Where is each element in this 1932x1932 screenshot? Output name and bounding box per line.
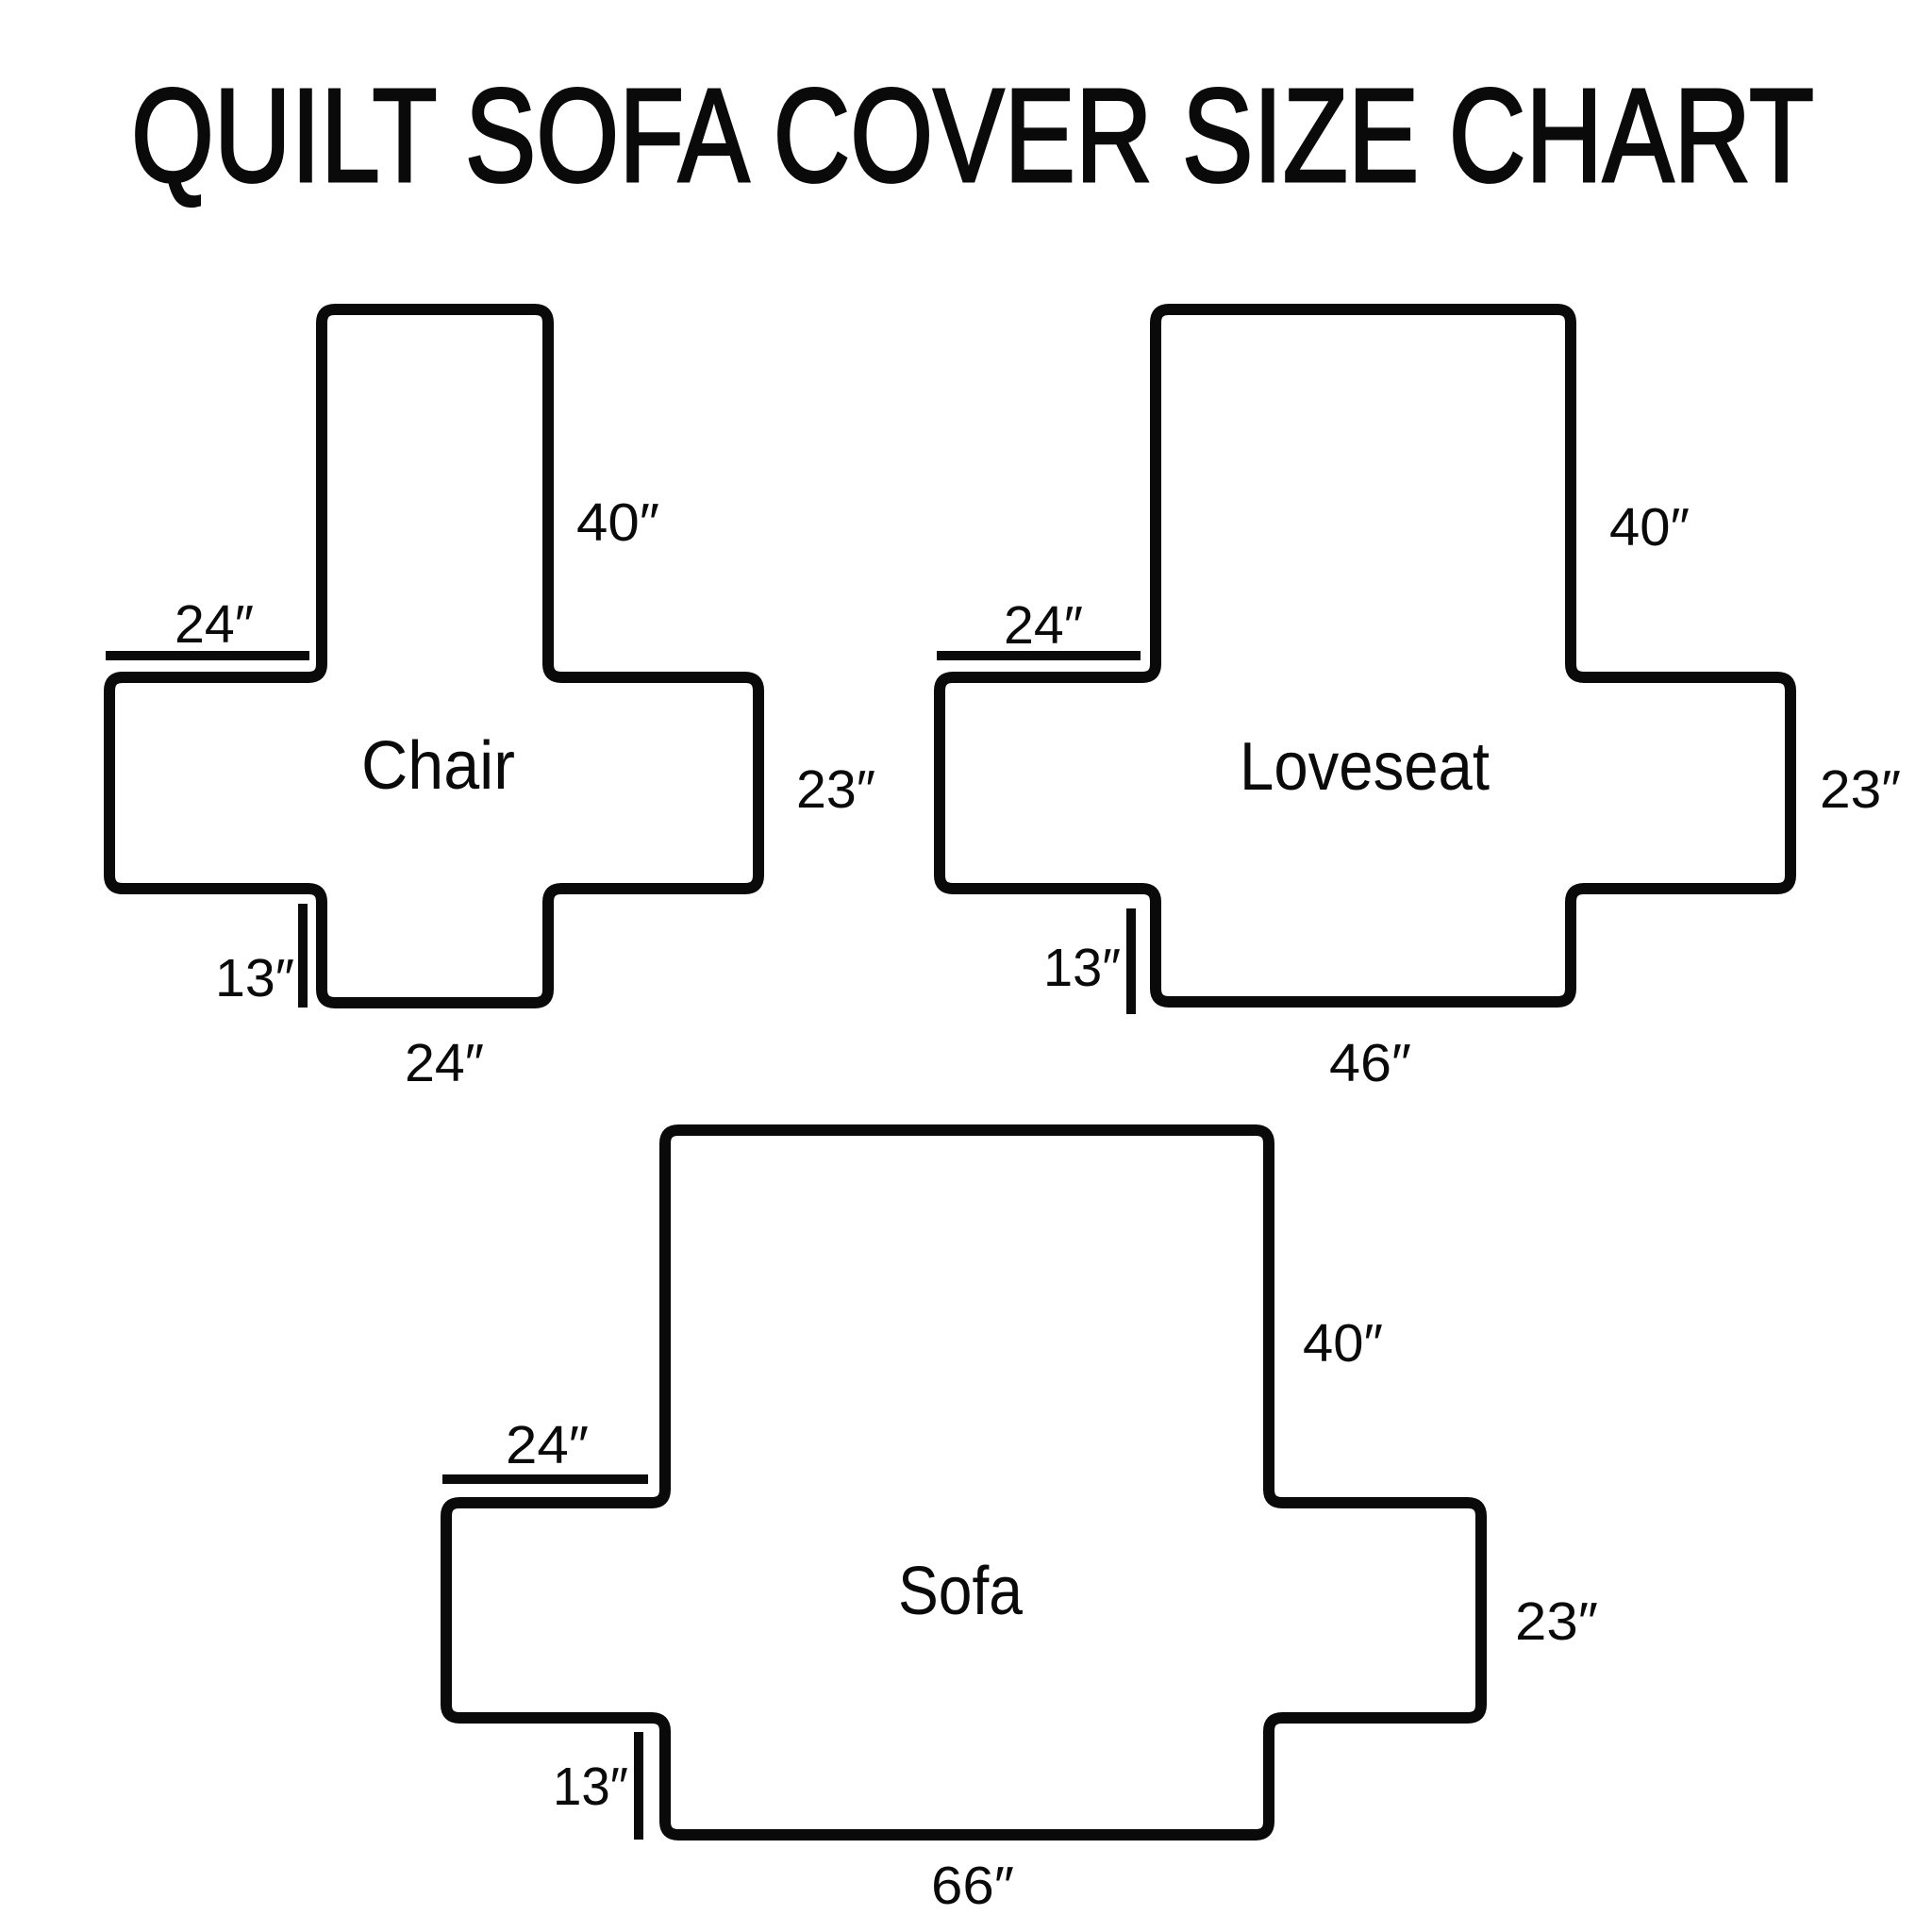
svg-text:46″: 46″ [1329, 1033, 1411, 1093]
svg-text:23″: 23″ [796, 759, 875, 820]
svg-text:24″: 24″ [405, 1033, 484, 1093]
svg-text:24″: 24″ [1004, 595, 1083, 656]
svg-text:40″: 40″ [1609, 497, 1690, 558]
svg-text:66″: 66″ [931, 1856, 1014, 1916]
svg-text:24″: 24″ [506, 1415, 589, 1475]
svg-text:24″: 24″ [175, 594, 254, 655]
svg-text:13″: 13″ [553, 1757, 628, 1817]
svg-text:13″: 13″ [215, 948, 294, 1008]
svg-text:Loveseat: Loveseat [1240, 729, 1490, 805]
svg-text:Chair: Chair [361, 728, 515, 804]
svg-text:40″: 40″ [1303, 1313, 1383, 1374]
svg-text:QUILT SOFA COVER SIZE CHART: QUILT SOFA COVER SIZE CHART [131, 60, 1814, 209]
svg-text:23″: 23″ [1820, 759, 1901, 820]
svg-text:40″: 40″ [576, 492, 659, 553]
svg-text:23″: 23″ [1515, 1591, 1598, 1652]
svg-text:13″: 13″ [1043, 938, 1121, 998]
svg-text:Sofa: Sofa [898, 1554, 1024, 1629]
